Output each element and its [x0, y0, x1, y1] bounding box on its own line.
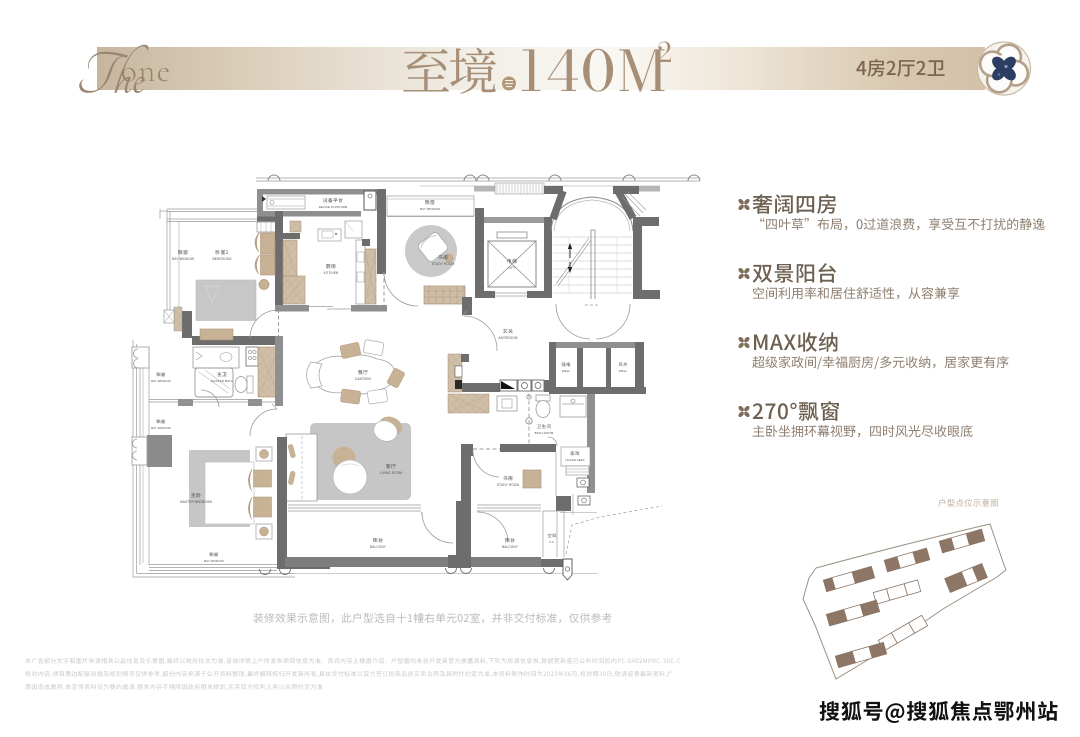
svg-text:ANTEROOM: ANTEROOM	[498, 336, 517, 340]
svg-text:BAY WINDOW: BAY WINDOW	[151, 426, 171, 430]
svg-text:STUDY ROOM: STUDY ROOM	[432, 262, 455, 266]
svg-text:DEVICE PLATFORM: DEVICE PLATFORM	[319, 205, 348, 209]
svg-text:KITCHEN: KITCHEN	[324, 271, 339, 275]
svg-text:WELL: WELL	[619, 369, 628, 373]
svg-text:WELL: WELL	[562, 369, 571, 373]
svg-text:BEDROOM2: BEDROOM2	[212, 257, 231, 261]
svg-text:MASTER BEDROOM: MASTER BEDROOM	[180, 500, 212, 504]
svg-text:LIFT: LIFT	[509, 266, 516, 270]
svg-text:BAY WINDOW: BAY WINDOW	[172, 257, 194, 261]
svg-text:BALCONY: BALCONY	[502, 545, 519, 549]
svg-text:BAY WINDOW: BAY WINDOW	[151, 379, 171, 383]
svg-text:BATH ROOM: BATH ROOM	[535, 431, 554, 435]
svg-text:BAY WINDOW: BAY WINDOW	[204, 559, 224, 563]
svg-text:A.C.: A.C.	[549, 540, 555, 544]
svg-text:BALCONY: BALCONY	[370, 545, 387, 549]
svg-text:CANTEEN: CANTEEN	[355, 377, 372, 381]
svg-text:LIVING ROOM: LIVING ROOM	[380, 471, 403, 475]
svg-text:STUDY ROOM: STUDY ROOM	[497, 483, 520, 487]
svg-text:HOUSE KEEP: HOUSE KEEP	[565, 458, 584, 462]
svg-text:BAY WINDOW: BAY WINDOW	[420, 207, 440, 211]
svg-text:MASTER BATH: MASTER BATH	[211, 379, 233, 383]
